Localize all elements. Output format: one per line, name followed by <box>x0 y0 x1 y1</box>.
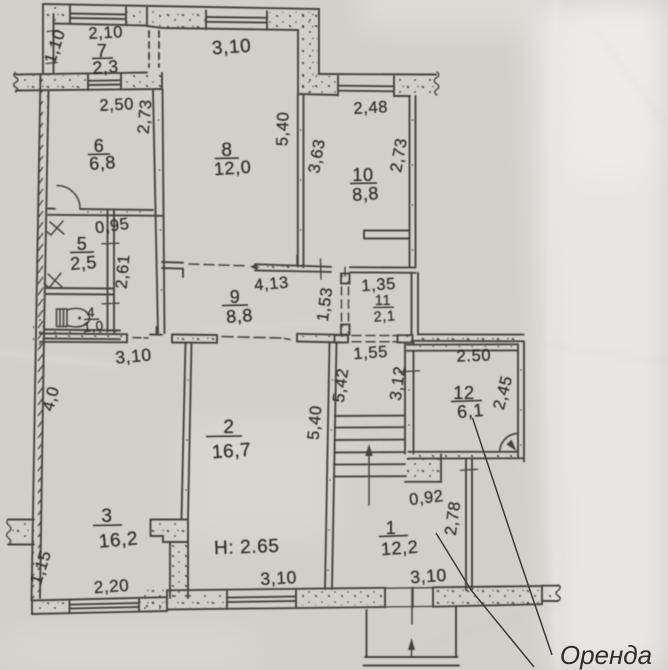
svg-text:1: 1 <box>386 518 397 538</box>
svg-text:10: 10 <box>352 165 373 185</box>
svg-text:1,0: 1,0 <box>83 318 105 335</box>
svg-text:16,7: 16,7 <box>211 440 252 464</box>
svg-text:12,0: 12,0 <box>213 157 252 180</box>
svg-text:3,10: 3,10 <box>410 565 448 587</box>
svg-text:2,1: 2,1 <box>373 308 396 325</box>
svg-text:2: 2 <box>223 417 234 438</box>
svg-text:3,10: 3,10 <box>260 567 297 589</box>
svg-text:8,8: 8,8 <box>352 183 380 205</box>
svg-text:6,8: 6,8 <box>89 152 117 174</box>
svg-text:3,10: 3,10 <box>211 36 252 60</box>
svg-text:5,40: 5,40 <box>273 111 292 146</box>
svg-text:2.50: 2.50 <box>456 346 491 365</box>
svg-text:2,50: 2,50 <box>99 95 134 115</box>
svg-text:2,73: 2,73 <box>135 99 156 135</box>
svg-text:2,5: 2,5 <box>70 252 98 274</box>
svg-text:4: 4 <box>87 305 95 320</box>
svg-text:3: 3 <box>101 506 112 527</box>
svg-text:5: 5 <box>77 234 88 254</box>
svg-text:3,10: 3,10 <box>114 344 152 367</box>
svg-text:6,1: 6,1 <box>456 400 484 422</box>
svg-text:4,13: 4,13 <box>254 274 290 295</box>
svg-text:Оренда: Оренда <box>560 640 652 670</box>
svg-text:1,55: 1,55 <box>353 343 389 363</box>
svg-text:H: 2.65: H: 2.65 <box>214 536 280 559</box>
svg-text:5,40: 5,40 <box>305 405 326 441</box>
svg-text:11: 11 <box>375 293 391 309</box>
svg-text:2,61: 2,61 <box>113 254 134 290</box>
svg-text:8,8: 8,8 <box>226 305 254 327</box>
svg-text:12,2: 12,2 <box>380 537 419 560</box>
svg-text:2,20: 2,20 <box>93 576 130 597</box>
svg-text:2,10: 2,10 <box>88 23 123 43</box>
svg-text:2,3: 2,3 <box>92 56 119 78</box>
svg-text:2,48: 2,48 <box>353 98 388 118</box>
svg-text:16,2: 16,2 <box>98 528 139 552</box>
svg-text:9: 9 <box>230 287 241 307</box>
